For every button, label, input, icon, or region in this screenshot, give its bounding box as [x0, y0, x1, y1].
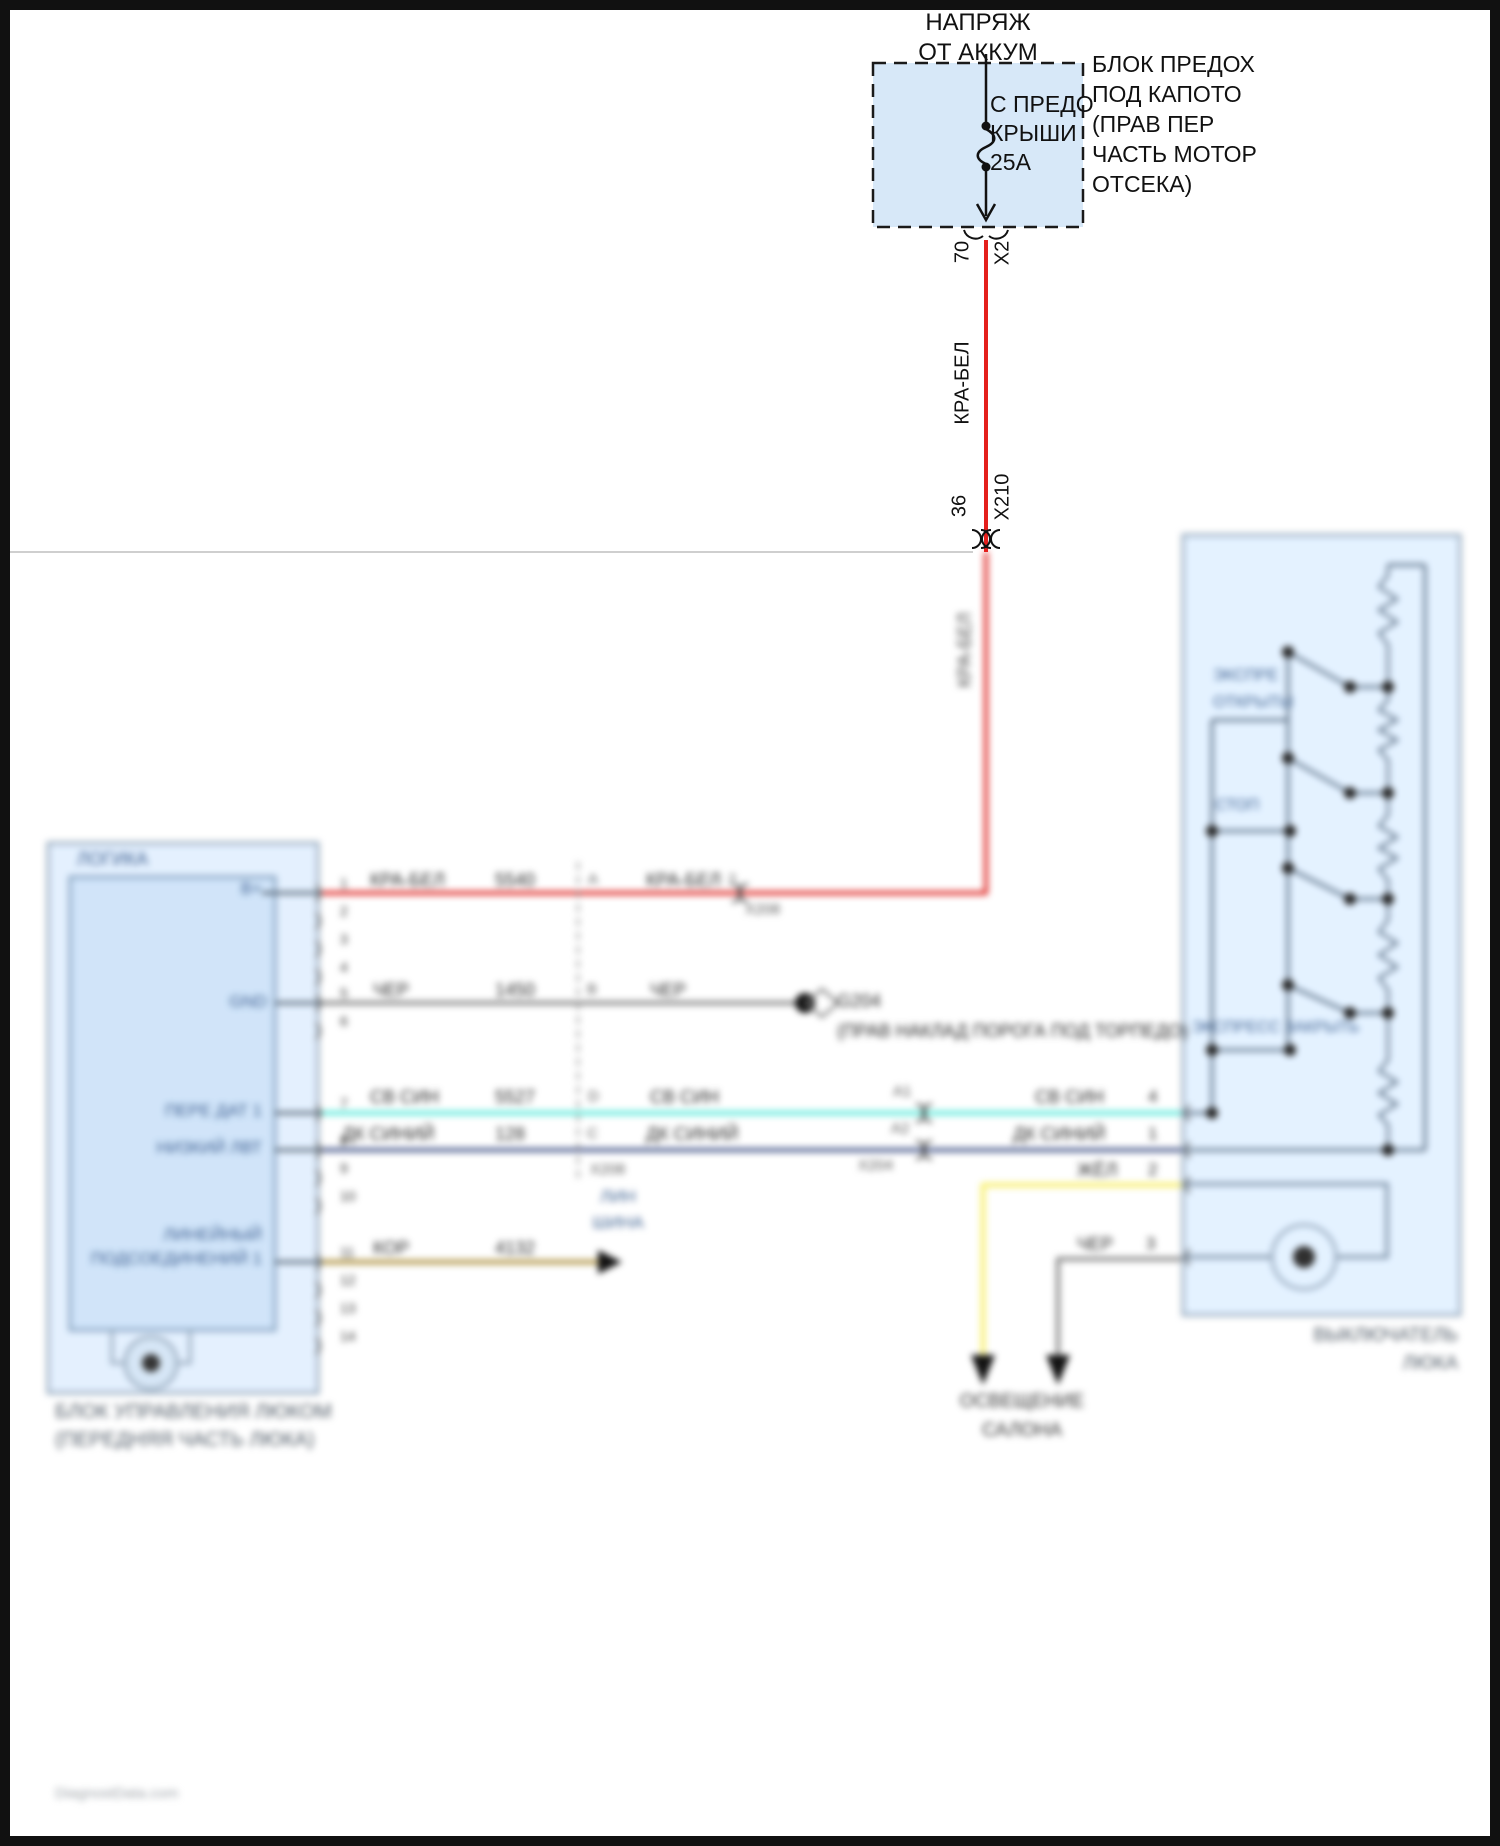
wiring-diagram-page: КРА-БЕЛЛОГИКАB+GNDПЕРЕ ДАТ 1НИЗКИЙ ЛВТЛИ…: [0, 0, 1500, 1846]
fusebox-name-line-3: (ПРАВ ПЕР: [1092, 112, 1214, 136]
wire-red-vertical-label: КРА-БЕЛ: [953, 341, 974, 424]
sharp-diagram-region: НАПРЯЖОТ АККУМС ПРЕДОКРЫШИ25АБЛОК ПРЕДОХ…: [0, 0, 1500, 1846]
diagram-shapes-sharp: [0, 0, 1500, 1846]
fusebox-pin-70: 70: [953, 241, 974, 263]
connector-x210: X210: [993, 474, 1014, 521]
fusebox-name-line-1: БЛОК ПРЕДОХ: [1092, 52, 1255, 76]
fuse-rating: 25А: [990, 150, 1031, 174]
page-border: [5, 5, 1495, 1841]
connector-x210-pin-36: 36: [950, 495, 971, 517]
fuse-name-line-2: КРЫШИ: [990, 121, 1077, 145]
fusebox-name-line-5: ОТСЕКА): [1092, 172, 1192, 196]
battery-feed-line-2: ОТ АККУМ: [918, 40, 1037, 65]
fusebox-name-line-4: ЧАСТЬ МОТОР: [1092, 142, 1257, 166]
fusebox-name-line-2: ПОД КАПОТО: [1092, 82, 1242, 106]
battery-feed-line-1: НАПРЯЖ: [925, 10, 1030, 35]
fusebox-connector-x2: X2: [993, 241, 1014, 265]
fusebox-bottom-connector-icon: [964, 230, 1008, 239]
fuse-name-line-1: С ПРЕДО: [990, 92, 1094, 116]
